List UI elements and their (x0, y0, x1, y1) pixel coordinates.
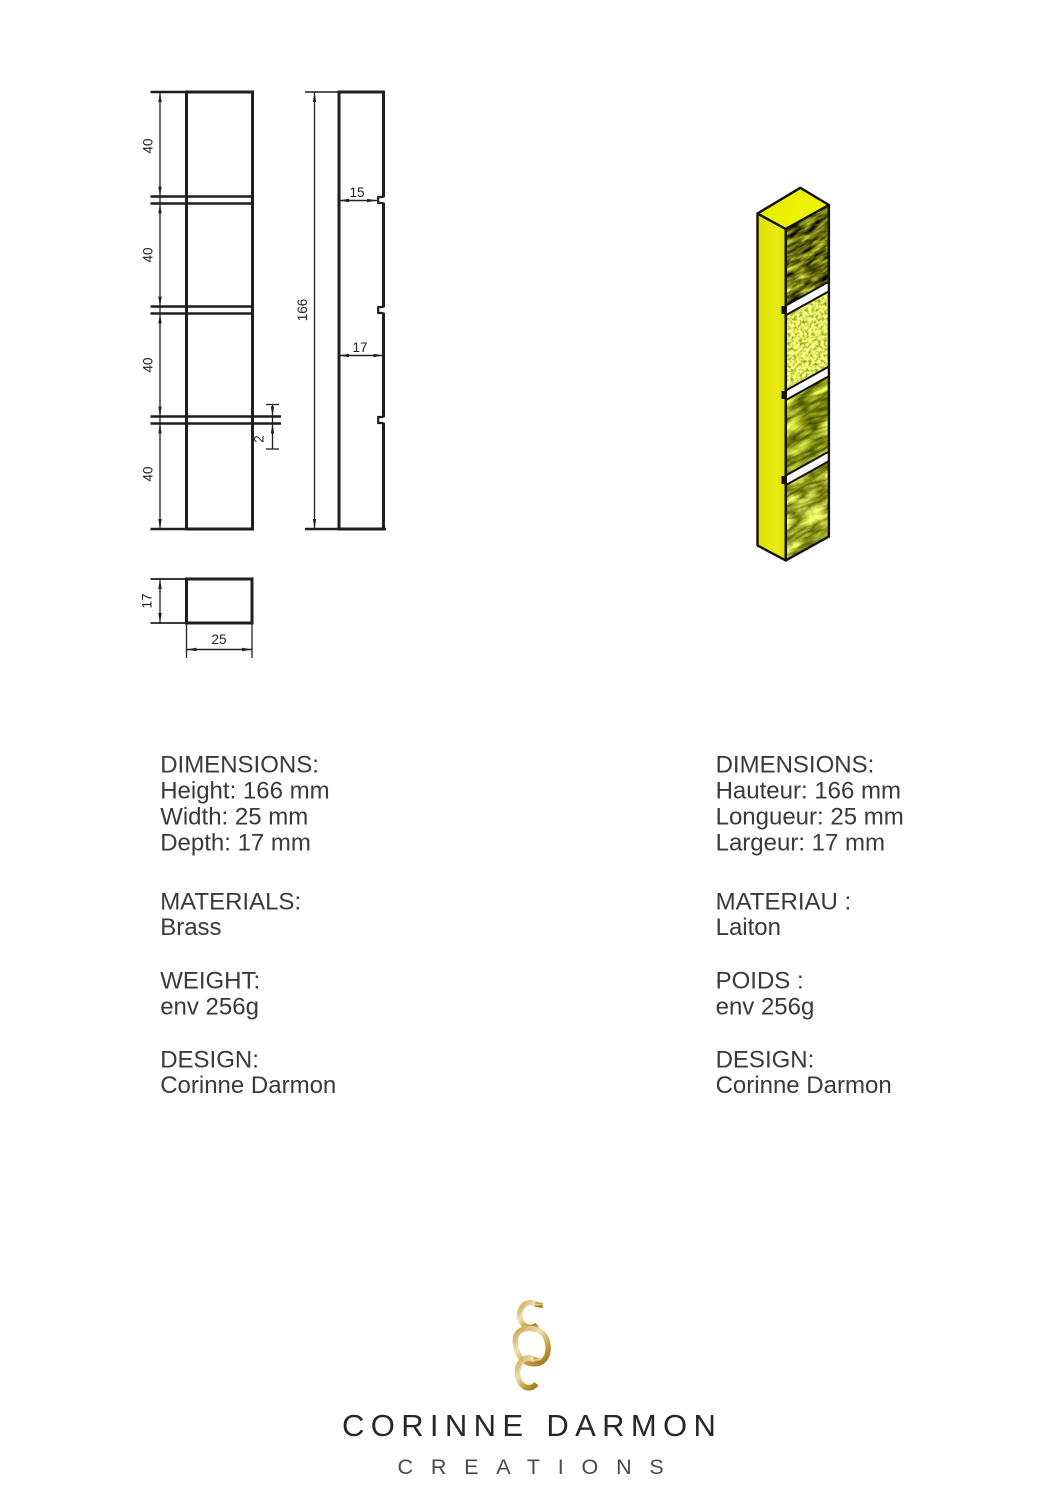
svg-text:CREATIONS: CREATIONS (398, 1455, 682, 1479)
svg-text:Height: 166 mm: Height: 166 mm (160, 777, 329, 804)
svg-text:env 256g: env 256g (716, 994, 815, 1021)
svg-text:POIDS :: POIDS : (716, 968, 804, 995)
svg-text:17: 17 (352, 340, 367, 355)
svg-text:Brass: Brass (160, 914, 221, 941)
svg-text:40: 40 (141, 357, 156, 372)
svg-text:WEIGHT:: WEIGHT: (160, 968, 260, 995)
svg-text:Depth: 17 mm: Depth: 17 mm (160, 829, 311, 856)
svg-text:15: 15 (349, 185, 364, 200)
svg-text:25: 25 (211, 632, 226, 647)
svg-text:Laiton: Laiton (716, 914, 781, 941)
svg-text:Corinne Darmon: Corinne Darmon (716, 1072, 892, 1099)
svg-text:MATERIAU :: MATERIAU : (716, 888, 852, 915)
svg-text:2: 2 (252, 435, 267, 443)
svg-text:Hauteur: 166 mm: Hauteur: 166 mm (716, 777, 901, 804)
svg-text:40: 40 (141, 247, 156, 262)
svg-text:Longueur: 25 mm: Longueur: 25 mm (716, 803, 904, 830)
svg-text:DIMENSIONS:: DIMENSIONS: (160, 752, 319, 779)
svg-text:Width: 25 mm: Width: 25 mm (160, 803, 308, 830)
svg-text:CORINNE DARMON: CORINNE DARMON (342, 1408, 722, 1443)
svg-text:166: 166 (295, 299, 310, 322)
svg-text:MATERIALS:: MATERIALS: (160, 888, 301, 915)
svg-text:DESIGN:: DESIGN: (716, 1046, 815, 1073)
svg-text:DESIGN:: DESIGN: (160, 1046, 259, 1073)
svg-text:40: 40 (141, 466, 156, 481)
svg-text:40: 40 (141, 138, 156, 153)
svg-text:DIMENSIONS:: DIMENSIONS: (716, 752, 875, 779)
svg-text:Largeur: 17 mm: Largeur: 17 mm (716, 829, 885, 856)
svg-text:Corinne Darmon: Corinne Darmon (160, 1072, 336, 1099)
svg-text:env 256g: env 256g (160, 994, 259, 1021)
svg-text:17: 17 (140, 593, 155, 608)
